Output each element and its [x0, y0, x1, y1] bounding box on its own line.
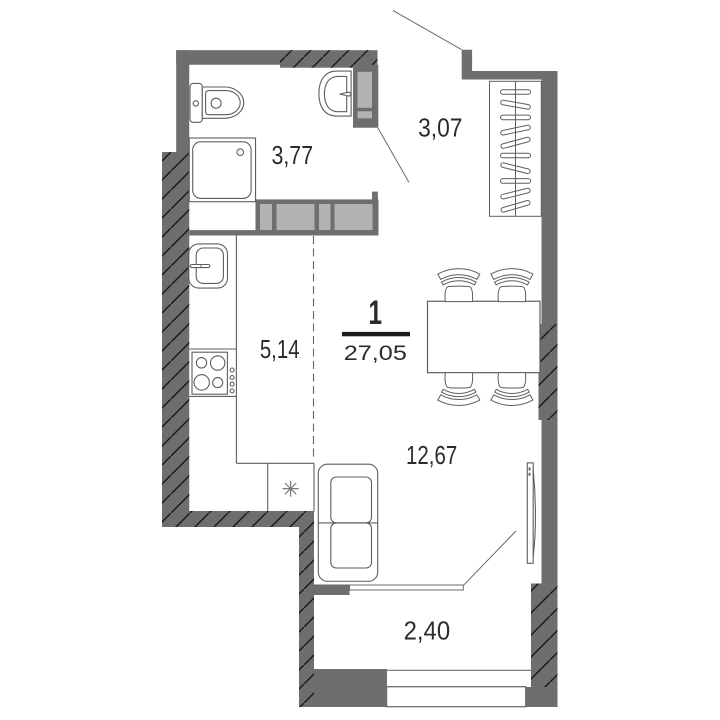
svg-text:3,07: 3,07	[418, 114, 462, 142]
svg-text:2,40: 2,40	[404, 618, 451, 646]
svg-text:12,67: 12,67	[406, 442, 457, 470]
svg-text:5,14: 5,14	[260, 336, 300, 364]
svg-text:3,77: 3,77	[271, 142, 313, 170]
svg-text:1: 1	[369, 294, 383, 332]
svg-text:27,05: 27,05	[344, 341, 407, 365]
